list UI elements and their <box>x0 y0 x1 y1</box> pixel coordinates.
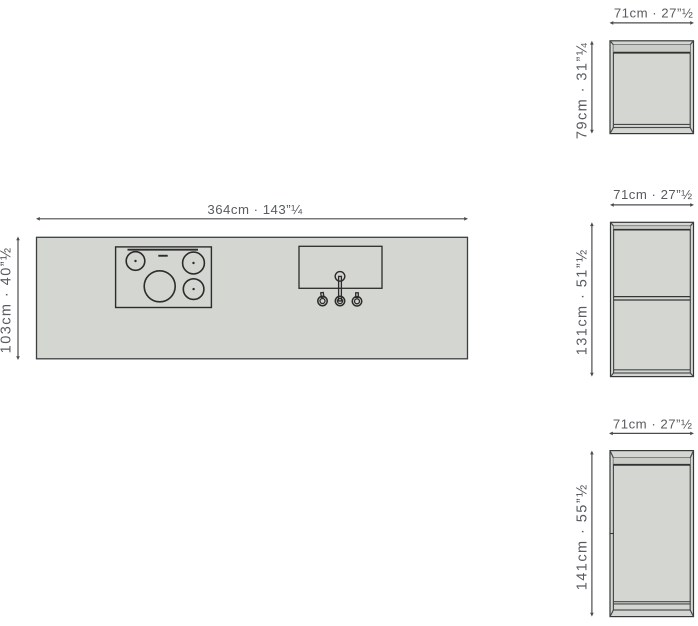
svg-text:71cm · 27”½: 71cm · 27”½ <box>613 187 693 202</box>
svg-text:71cm · 27”½: 71cm · 27”½ <box>614 6 694 21</box>
svg-text:131cm · 51”½: 131cm · 51”½ <box>575 248 591 355</box>
svg-text:364cm · 143”¼: 364cm · 143”¼ <box>207 202 303 217</box>
svg-text:141cm · 55”½: 141cm · 55”½ <box>575 483 591 590</box>
svg-text:79cm · 31”¼: 79cm · 31”¼ <box>575 42 591 139</box>
svg-text:103cm · 40”½: 103cm · 40”½ <box>0 246 15 353</box>
svg-text:71cm · 27”½: 71cm · 27”½ <box>613 417 693 432</box>
